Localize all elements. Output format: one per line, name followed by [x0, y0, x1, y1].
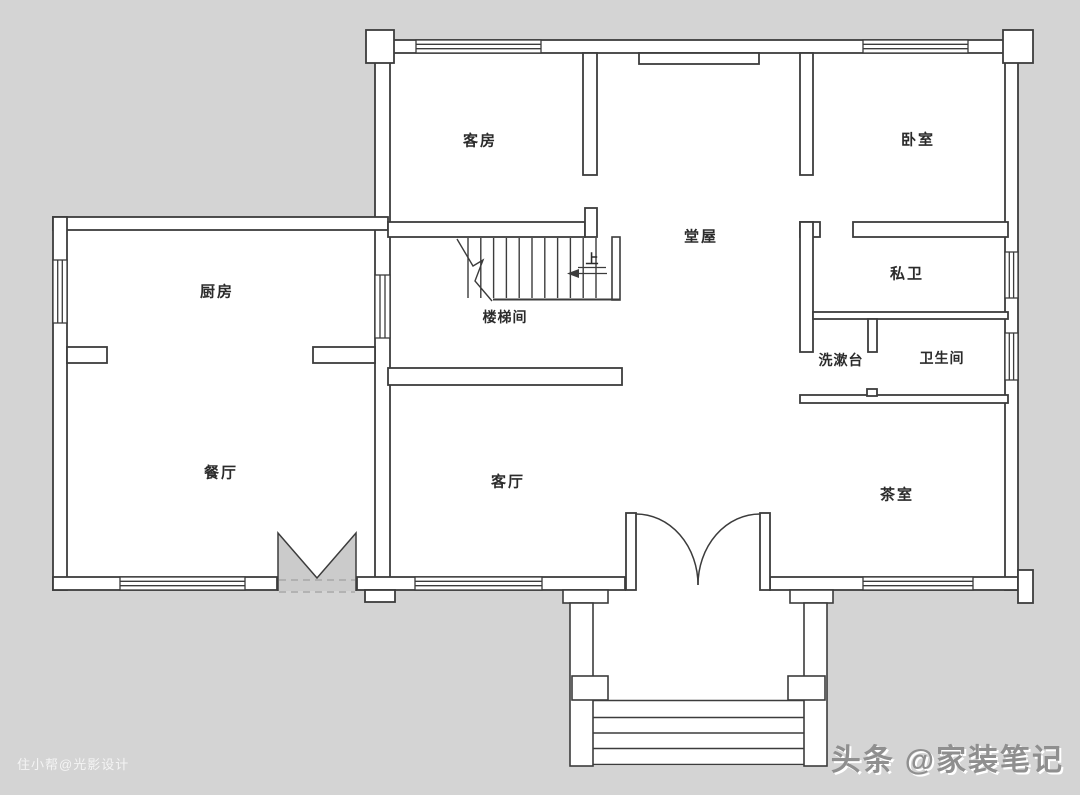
wall-bedroom-bottom [853, 222, 1008, 237]
room-label-hall: 堂屋 [684, 226, 718, 247]
wall-stairwell-bottom [388, 368, 622, 385]
window-bedroom-top [863, 40, 968, 53]
wall-privatebath-bottom [813, 312, 1008, 319]
room-label-guest-room: 客房 [463, 130, 497, 151]
wall-guestroom-corner-pillar [585, 208, 597, 237]
wall-washstand-bathroom-divider [868, 319, 877, 352]
room-label-stairwell: 楼梯间 [483, 307, 528, 327]
wall-tearoom-north-stub [867, 389, 877, 396]
window-privatebath-right [1005, 252, 1018, 298]
door-jamb-right [760, 513, 770, 590]
window-guestroom-top [416, 40, 541, 53]
window-living-bottom [415, 577, 542, 590]
floor-plan-drawing [0, 0, 1080, 795]
wall-guestroom-right [583, 53, 597, 175]
watermark-brand: 头条 [831, 744, 895, 777]
hall-lintel [639, 53, 759, 64]
window-kitchen-stairwell [375, 275, 390, 338]
wall-kitchen-top [53, 217, 388, 230]
room-label-bedroom: 卧室 [901, 129, 935, 150]
exterior-stoop [365, 590, 395, 602]
window-tearoom-bottom [863, 577, 973, 590]
wall-bedroom-left [800, 53, 813, 175]
room-label-kitchen: 厨房 [200, 281, 234, 302]
window-dining-bottom [120, 577, 245, 590]
floor-left-block [53, 217, 388, 590]
window-kitchen-left [53, 260, 67, 323]
room-label-washstand: 洗漱台 [819, 350, 864, 370]
wall-privatebath-left [800, 222, 813, 352]
room-label-bathroom: 卫生间 [920, 348, 965, 368]
door-jamb-left [626, 513, 636, 590]
stair-up-label: 上 [585, 249, 598, 268]
wall-tearoom-north [800, 395, 1008, 403]
porch-pilaster-left [563, 590, 608, 603]
floor-plan: 客房 卧室 堂屋 厨房 楼梯间 私卫 洗漱台 卫生间 餐厅 客厅 茶室 上 住小… [0, 0, 1080, 795]
porch-column-right [788, 676, 825, 700]
wall-guestroom-bottom [388, 222, 585, 237]
room-label-private-bath: 私卫 [890, 263, 924, 284]
pier-bottom-right [1018, 570, 1033, 603]
wall-kitchen-dining-divider-left [67, 347, 107, 363]
watermark-handle: @家装笔记 [905, 744, 1064, 777]
wall-kitchen-dining-divider-right [313, 347, 375, 363]
porch-column-left [572, 676, 608, 700]
pier-top-left [366, 30, 394, 63]
watermark-bottom-right: 头条@家装笔记 [831, 735, 1064, 779]
room-label-dining-room: 餐厅 [204, 462, 238, 483]
pier-top-right [1003, 30, 1033, 63]
room-label-living-room: 客厅 [491, 471, 525, 492]
stair-landing-edge [612, 237, 620, 300]
window-bathroom-right [1005, 333, 1018, 380]
watermark-bottom-left: 住小帮@光影设计 [17, 754, 129, 773]
room-label-tea-room: 茶室 [880, 484, 914, 505]
porch-pilaster-right [790, 590, 833, 603]
